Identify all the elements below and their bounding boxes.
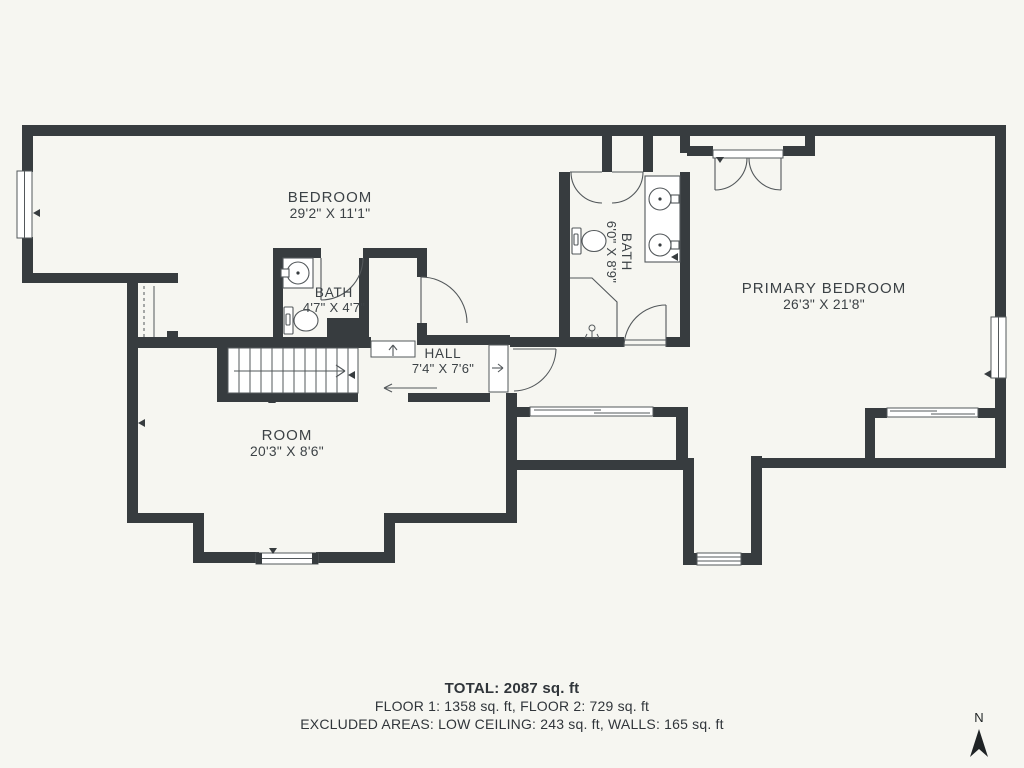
walls — [22, 125, 1006, 565]
room-label-bath-primary: BATH 6'0" X 8'9" — [592, 192, 634, 312]
room-name: HALL — [383, 346, 503, 361]
door-hall-to-primary — [513, 349, 556, 391]
room-name: BATH — [619, 192, 634, 312]
room-label-room: ROOM 20'3" X 8'6" — [187, 427, 387, 460]
total-area-text: TOTAL: 2087 sq. ft — [0, 679, 1024, 698]
room-name: BATH — [274, 285, 394, 300]
floor-plan-drawing — [0, 0, 1024, 768]
vanity-small-bath — [281, 258, 313, 288]
window-dormer-south — [887, 408, 978, 417]
window-wing-south — [530, 407, 653, 416]
area-summary: TOTAL: 2087 sq. ft FLOOR 1: 1358 sq. ft,… — [0, 679, 1024, 733]
room-dims: 26'3" X 21'8" — [704, 297, 944, 313]
excluded-areas-text: EXCLUDED AREAS: LOW CEILING: 243 sq. ft,… — [0, 716, 1024, 734]
north-compass: N — [963, 710, 995, 758]
room-name: BEDROOM — [230, 189, 430, 206]
low-ceiling-lines — [144, 286, 154, 337]
room-dims: 6'0" X 8'9" — [604, 192, 619, 312]
door-landing-to-bedroom — [421, 277, 467, 323]
room-name: PRIMARY BEDROOM — [704, 280, 944, 297]
window-left — [17, 171, 32, 238]
room-label-bedroom: BEDROOM 29'2" X 11'1" — [230, 189, 430, 222]
room-label-primary-bedroom: PRIMARY BEDROOM 26'3" X 21'8" — [704, 280, 944, 313]
north-label: N — [963, 710, 995, 726]
room-dims: 7'4" X 7'6" — [383, 361, 503, 376]
vanity-primary-bath — [645, 176, 680, 262]
floor-areas-text: FLOOR 1: 1358 sq. ft, FLOOR 2: 729 sq. f… — [0, 698, 1024, 716]
room-label-hall: HALL 7'4" X 7'6" — [383, 346, 503, 376]
door-closet-double — [713, 150, 783, 190]
room-name: ROOM — [187, 427, 387, 444]
room-dims: 29'2" X 11'1" — [230, 206, 430, 222]
room-label-bath-small: BATH 4'7" X 4'7" — [274, 285, 394, 315]
window-right — [991, 317, 1006, 378]
room-dims: 20'3" X 8'6" — [187, 444, 387, 460]
window-room-south — [256, 553, 318, 564]
room-dims: 4'7" X 4'7" — [274, 300, 394, 315]
window-bay-south — [697, 553, 741, 565]
stair-down-arrow — [384, 384, 437, 392]
north-arrow-icon — [969, 728, 989, 758]
